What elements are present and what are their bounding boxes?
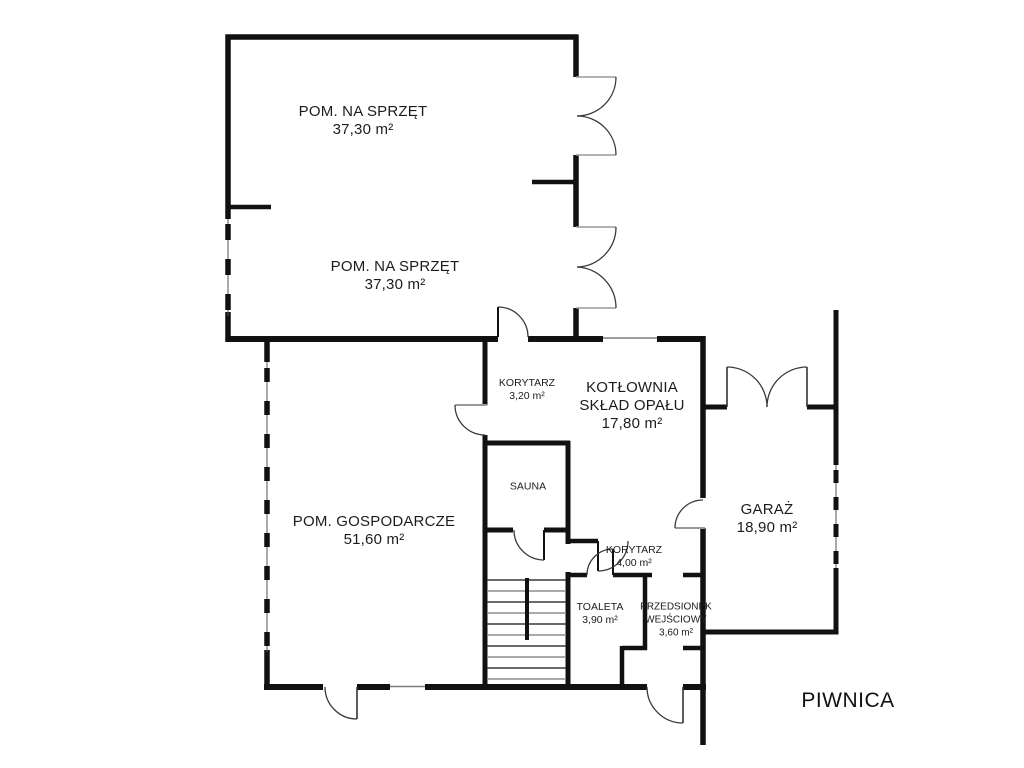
floor-plan-drawing	[0, 0, 1024, 768]
door-leaves	[357, 77, 807, 723]
floor-plan: POM. NA SPRZĘT 37,30 m² POM. NA SPRZĘT 3…	[0, 0, 1024, 768]
plan-title: PIWNICA	[801, 689, 894, 713]
dashed-wall-segments	[228, 219, 836, 652]
thin-wall-lines	[390, 338, 657, 687]
walls	[226, 35, 839, 746]
staircase	[487, 578, 566, 679]
